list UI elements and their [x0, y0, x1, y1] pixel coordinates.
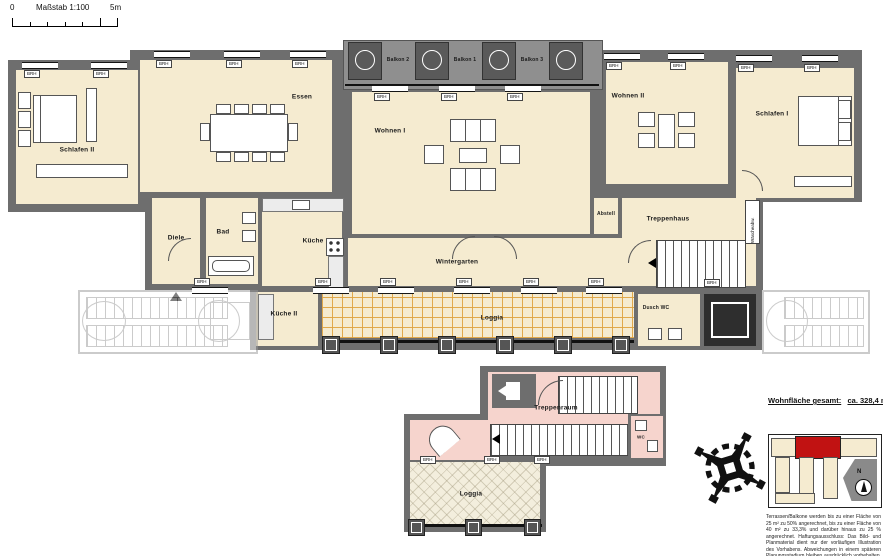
- site-building-wing: [775, 493, 815, 504]
- window: [372, 85, 408, 92]
- window: [378, 287, 414, 294]
- armchair: [424, 145, 444, 164]
- brh-label: BRH: [507, 93, 523, 101]
- chair: [252, 104, 267, 114]
- wohnen2-label: Wohnen II: [612, 93, 645, 100]
- brh-label: BRH: [292, 60, 308, 68]
- chair: [270, 104, 285, 114]
- loggia-balustrade: [322, 340, 634, 343]
- pillow: [18, 111, 31, 128]
- chair: [678, 112, 695, 127]
- site-building-wing: [775, 457, 790, 493]
- loggia-pillar: [322, 336, 340, 354]
- chute-label: Wäscheabw.: [745, 200, 760, 244]
- kitchen-sink: [292, 200, 310, 210]
- loggia-pillar: [408, 519, 425, 536]
- balkon3-label: Balkon 3: [521, 57, 543, 63]
- room-wohnen1: [352, 92, 590, 234]
- living-area-label: Wohnfläche gesamt:: [768, 396, 841, 405]
- site-key-plan: N: [768, 434, 882, 508]
- brh-label: BRH: [588, 278, 604, 286]
- essen-label: Essen: [292, 94, 312, 101]
- pillow: [838, 122, 851, 141]
- lower-vestibule: [492, 374, 536, 408]
- window: [154, 51, 190, 58]
- chair: [270, 152, 285, 162]
- dresser: [36, 164, 128, 178]
- window: [439, 85, 475, 92]
- bathtub: [208, 256, 254, 276]
- balcony-pillar: [348, 42, 382, 80]
- stairs-main: [656, 240, 746, 288]
- scalebar-end: 5m: [110, 3, 121, 12]
- bed-schlafen2: [33, 95, 77, 143]
- scalebar-zero: 0: [10, 3, 14, 12]
- coffee-table: [459, 148, 487, 163]
- window: [91, 62, 127, 69]
- brh-label: BRH: [374, 93, 390, 101]
- schlafen2-label: Schlafen II: [60, 147, 95, 154]
- schlafen1-label: Schlafen I: [756, 111, 789, 118]
- chair: [252, 152, 267, 162]
- brh-label: BRH: [194, 278, 210, 286]
- chair: [200, 123, 210, 141]
- treppenraum-label: Treppenraum: [534, 405, 577, 412]
- chair: [638, 133, 655, 148]
- balcony-pillar: [549, 42, 583, 80]
- window: [586, 287, 622, 294]
- abstell-label: Abstell: [597, 211, 615, 217]
- brh-label: BRH: [380, 278, 396, 286]
- window: [224, 51, 260, 58]
- chair: [234, 104, 249, 114]
- window: [505, 85, 541, 92]
- lower-room-wc: [628, 414, 663, 458]
- chair: [234, 152, 249, 162]
- sink: [648, 328, 662, 340]
- disclaimer-text: Terrassen/Balkone werden bis zu einer Fl…: [766, 514, 881, 556]
- balcony-pillar: [482, 42, 516, 80]
- dining-table: [210, 114, 288, 152]
- brh-label: BRH: [523, 278, 539, 286]
- brh-label: BRH: [704, 279, 720, 287]
- pillow: [18, 92, 31, 109]
- scalebar-label: Maßstab 1:100: [36, 3, 89, 12]
- window: [192, 287, 228, 294]
- brh-label: BRH: [738, 64, 754, 72]
- window: [668, 53, 704, 60]
- neighbor-stairwell-right: [762, 290, 870, 354]
- wohnen1-label: Wohnen I: [375, 128, 406, 135]
- site-north-label: N: [857, 469, 861, 475]
- window: [521, 287, 557, 294]
- site-building-wing: [823, 457, 838, 499]
- loggia-pillar: [438, 336, 456, 354]
- sink: [242, 230, 256, 242]
- site-mini-compass: [855, 479, 872, 496]
- window: [802, 55, 838, 62]
- floorplan-canvas: 0 Maßstab 1:100 5m Balkon 2 Balkon 1 Bal…: [0, 0, 883, 556]
- chair: [678, 133, 695, 148]
- loggia-pillar: [612, 336, 630, 354]
- treppenhaus-label: Treppenhaus: [647, 216, 690, 223]
- neighbor-stairwell-left: [78, 290, 258, 354]
- brh-label: BRH: [315, 278, 331, 286]
- kueche2-label: Küche II: [271, 311, 298, 318]
- scalebar-ruler: [12, 18, 118, 27]
- balcony-pillar: [415, 42, 449, 80]
- living-area-summary: Wohnfläche gesamt: ca. 328,4 m²: [768, 396, 883, 405]
- wardrobe: [86, 88, 97, 142]
- brh-label: BRH: [456, 278, 472, 286]
- brh-label: BRH: [420, 456, 436, 464]
- toilet: [242, 212, 256, 224]
- window: [290, 51, 326, 58]
- window: [736, 55, 772, 62]
- lower-wc-label: WC: [637, 435, 645, 440]
- loggia-pillar: [380, 336, 398, 354]
- brh-label: BRH: [93, 70, 109, 78]
- brh-label: BRH: [606, 62, 622, 70]
- loggia-pillar: [524, 519, 541, 536]
- brh-label: BRH: [670, 62, 686, 70]
- stairs-direction-arrow: [492, 434, 500, 444]
- chair: [216, 152, 231, 162]
- living-area-value: ca. 328,4 m²: [847, 396, 883, 405]
- window: [604, 53, 640, 60]
- bench: [794, 176, 852, 187]
- chair: [288, 123, 298, 141]
- loggia-pillar: [465, 519, 482, 536]
- sofa: [450, 119, 496, 142]
- loggia-pillar: [554, 336, 572, 354]
- lower-loggia-label: Loggia: [460, 491, 483, 498]
- site-highlighted-unit: [795, 436, 841, 459]
- brh-label: BRH: [156, 60, 172, 68]
- elevator: [704, 294, 756, 346]
- compass-rose-icon: [692, 430, 768, 506]
- balkon1-label: Balkon 1: [454, 57, 476, 63]
- brh-label: BRH: [441, 93, 457, 101]
- pillow: [18, 130, 31, 147]
- bad-label: Bad: [217, 229, 230, 236]
- pillow: [838, 100, 851, 119]
- sofa: [450, 168, 496, 191]
- loggia-pillar: [496, 336, 514, 354]
- toilet: [668, 328, 682, 340]
- window: [454, 287, 490, 294]
- duschwc-label: Dusch WC: [643, 305, 670, 311]
- balkon2-label: Balkon 2: [387, 57, 409, 63]
- brh-label: BRH: [804, 64, 820, 72]
- wintergarten-label: Wintergarten: [436, 259, 478, 266]
- diele-label: Diele: [168, 235, 185, 242]
- chair: [638, 112, 655, 127]
- brh-label: BRH: [226, 60, 242, 68]
- brh-label: BRH: [484, 456, 500, 464]
- chair: [216, 104, 231, 114]
- brh-label: BRH: [24, 70, 40, 78]
- table-wohnen2: [658, 114, 675, 148]
- window: [22, 62, 58, 69]
- armchair: [500, 145, 520, 164]
- brh-label: BRH: [534, 456, 550, 464]
- loggia-label: Loggia: [481, 315, 504, 322]
- stove: [326, 238, 344, 256]
- compass-rose: [692, 430, 768, 506]
- kueche-label: Küche: [303, 238, 324, 245]
- room-loggia: [322, 292, 634, 338]
- window: [313, 287, 349, 294]
